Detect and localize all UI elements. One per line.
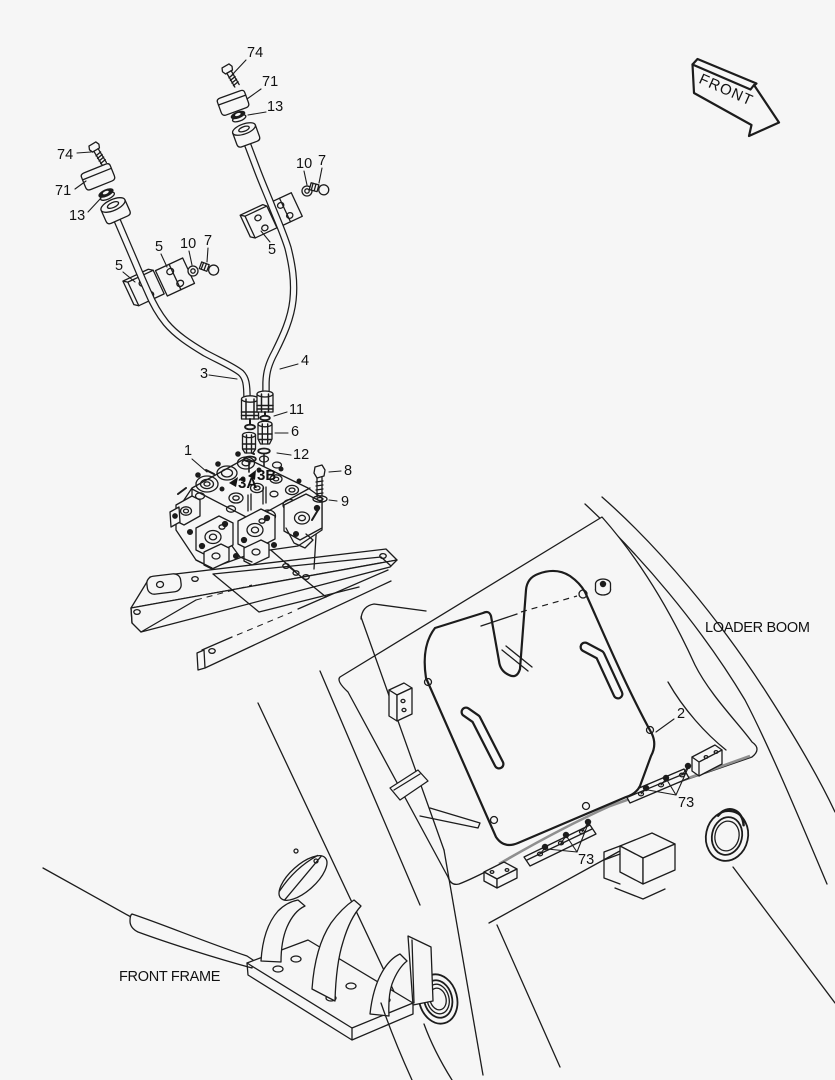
svg-text:13: 13	[267, 99, 283, 115]
svg-text:3B: 3B	[257, 467, 276, 484]
svg-text:5: 5	[115, 258, 123, 274]
svg-text:8: 8	[344, 463, 352, 479]
svg-text:FRONT FRAME: FRONT FRAME	[119, 969, 221, 985]
svg-text:4: 4	[301, 353, 309, 369]
svg-text:LOADER BOOM: LOADER BOOM	[705, 620, 810, 636]
svg-text:71: 71	[55, 183, 71, 199]
svg-text:6: 6	[291, 424, 299, 440]
svg-text:10: 10	[180, 236, 196, 252]
svg-text:12: 12	[293, 447, 309, 463]
svg-text:13: 13	[69, 208, 85, 224]
svg-text:5: 5	[155, 239, 163, 255]
svg-text:9: 9	[341, 494, 349, 510]
svg-text:3: 3	[200, 366, 208, 382]
svg-text:1: 1	[184, 443, 192, 459]
svg-text:73: 73	[678, 795, 694, 811]
svg-text:74: 74	[247, 45, 263, 61]
svg-text:11: 11	[289, 402, 304, 418]
svg-text:73: 73	[578, 852, 594, 868]
svg-text:7: 7	[318, 153, 326, 169]
svg-text:2: 2	[677, 706, 685, 722]
svg-text:7: 7	[204, 233, 212, 249]
svg-text:74: 74	[57, 147, 73, 163]
svg-text:5: 5	[268, 242, 276, 258]
svg-text:10: 10	[296, 156, 312, 172]
svg-text:71: 71	[262, 74, 278, 90]
